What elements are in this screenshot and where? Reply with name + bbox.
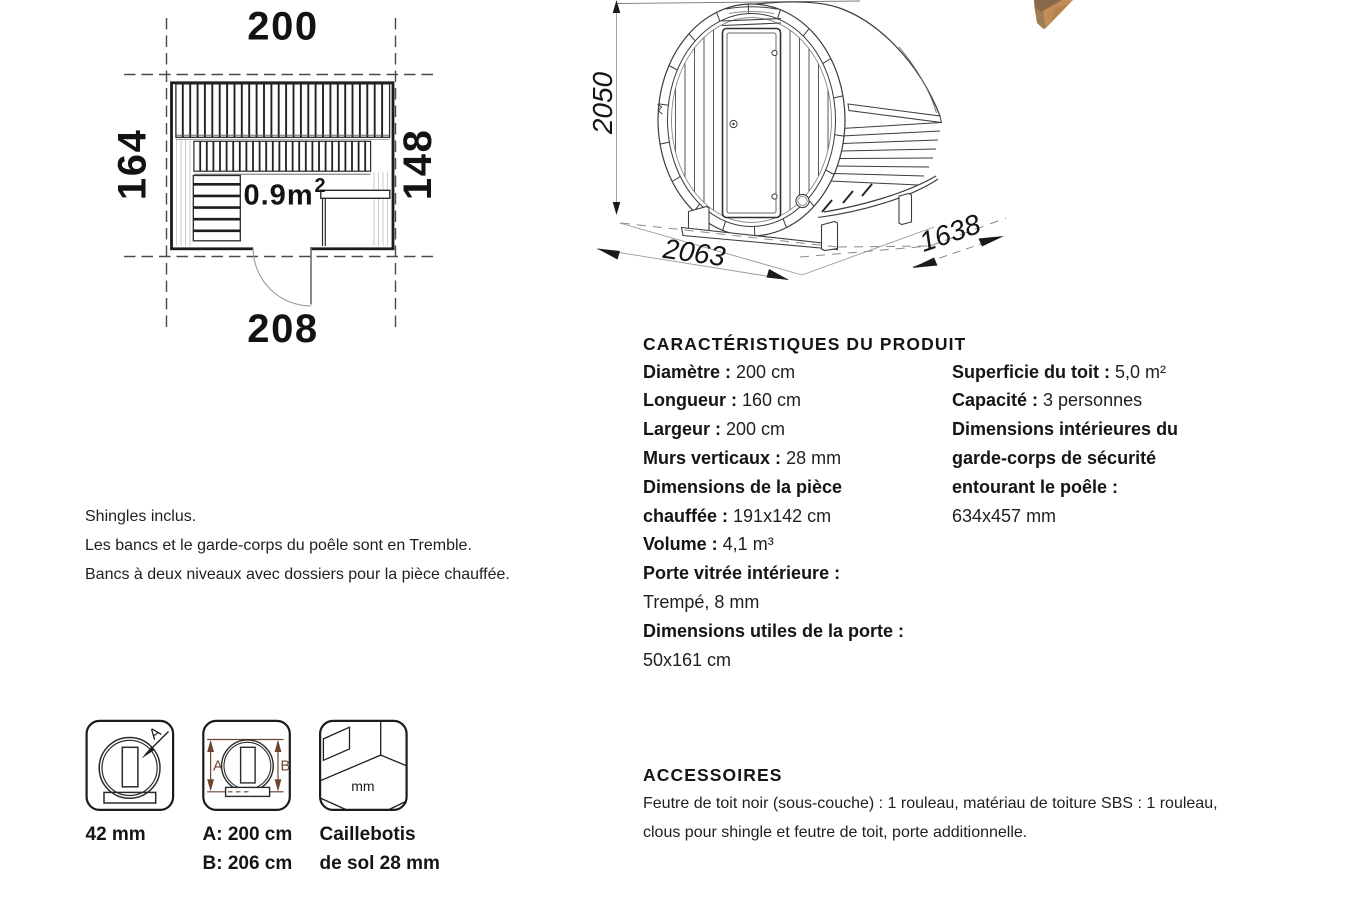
svg-text:208: 208 xyxy=(247,307,319,350)
svg-text:2050: 2050 xyxy=(587,71,618,135)
svg-text:148: 148 xyxy=(396,129,440,201)
svg-text:0.9m: 0.9m xyxy=(244,180,314,212)
svg-text:2: 2 xyxy=(315,175,326,197)
svg-text:1638: 1638 xyxy=(915,208,984,258)
svg-text:B: B xyxy=(281,759,291,775)
svg-text:mm: mm xyxy=(351,778,374,794)
svg-text:200: 200 xyxy=(247,5,319,49)
svg-text:164: 164 xyxy=(111,129,155,201)
svg-text:A: A xyxy=(213,759,223,775)
